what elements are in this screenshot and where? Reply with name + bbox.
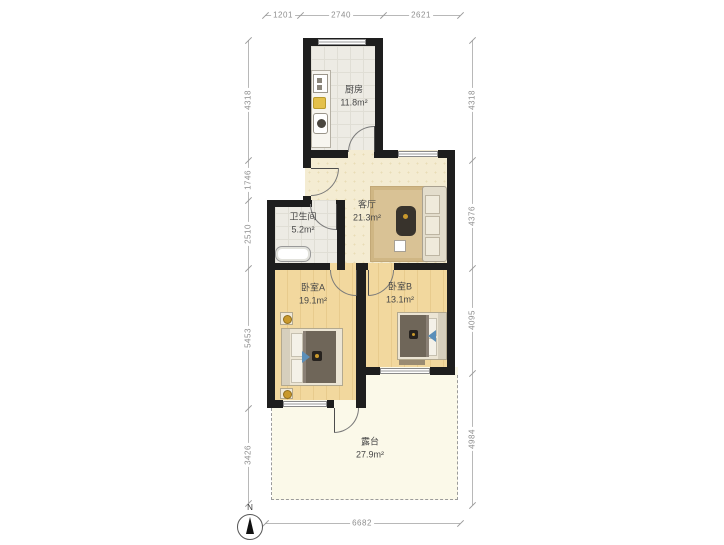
bed-tray bbox=[409, 330, 418, 339]
sofa bbox=[422, 186, 447, 262]
door-leaf bbox=[356, 270, 357, 296]
room-area: 5.2m² bbox=[289, 223, 316, 236]
nightstand bbox=[280, 388, 293, 399]
room-label-terrace: 露台 27.9m² bbox=[356, 435, 384, 460]
room-name: 卧室A bbox=[299, 281, 327, 294]
north-arrow-icon bbox=[246, 517, 254, 534]
wall-segment bbox=[267, 263, 330, 270]
dimension-label: 2740 bbox=[329, 11, 353, 20]
wall-segment bbox=[356, 270, 366, 408]
table-decor-icon bbox=[403, 214, 408, 219]
kitchen-sink bbox=[313, 113, 328, 134]
sofa-cushion bbox=[425, 195, 440, 214]
room-label-living: 客厅 21.3m² bbox=[353, 198, 381, 223]
sofa-cushion bbox=[425, 216, 440, 235]
door-leaf bbox=[374, 126, 375, 152]
blanket-fold-icon bbox=[428, 330, 436, 342]
bathtub bbox=[275, 246, 311, 262]
lamp-icon bbox=[283, 390, 292, 399]
wall-segment bbox=[303, 38, 311, 168]
tray-dot-icon bbox=[412, 333, 415, 336]
bed-headboard bbox=[438, 313, 446, 359]
door-leaf bbox=[336, 204, 337, 230]
dimension-label: 4984 bbox=[468, 427, 477, 451]
dimension-label: 4095 bbox=[468, 308, 477, 332]
terrace-boundary bbox=[271, 499, 458, 500]
wall-segment bbox=[374, 150, 398, 158]
room-name: 客厅 bbox=[353, 198, 381, 211]
dimension-label: 6682 bbox=[350, 519, 374, 528]
room-name: 卧室B bbox=[386, 280, 414, 293]
dimension-label: 3426 bbox=[244, 443, 253, 467]
compass: N bbox=[233, 503, 267, 545]
coffee-table bbox=[396, 206, 416, 236]
room-area: 27.9m² bbox=[356, 448, 384, 461]
bed-bench bbox=[399, 360, 425, 365]
room-area: 19.1m² bbox=[299, 294, 327, 307]
room-name: 厨房 bbox=[340, 83, 367, 96]
room-label-bedroom-a: 卧室A 19.1m² bbox=[299, 281, 327, 306]
dimension-label: 1201 bbox=[271, 11, 295, 20]
room-name: 露台 bbox=[356, 435, 384, 448]
kitchen-appliance bbox=[313, 97, 326, 109]
room-label-bedroom-b: 卧室B 13.1m² bbox=[386, 280, 414, 305]
bed-headboard bbox=[282, 329, 290, 385]
burner-icon bbox=[317, 85, 322, 90]
dimension-label: 2510 bbox=[244, 222, 253, 246]
sink-basin-icon bbox=[317, 119, 326, 128]
dimension-tick bbox=[457, 520, 464, 527]
burner-icon bbox=[317, 78, 322, 83]
sofa-cushion bbox=[425, 237, 440, 256]
window bbox=[398, 151, 438, 157]
tray-dot-icon bbox=[315, 354, 319, 358]
wall-segment bbox=[394, 263, 455, 270]
dimension-label: 1746 bbox=[244, 168, 253, 192]
dimension-label: 4318 bbox=[468, 88, 477, 112]
lamp-icon bbox=[283, 315, 292, 324]
room-label-kitchen: 厨房 11.8m² bbox=[340, 83, 367, 108]
wall-segment bbox=[267, 270, 275, 408]
wall-segment bbox=[267, 200, 275, 270]
bed-b bbox=[397, 312, 447, 360]
room-area: 13.1m² bbox=[386, 293, 414, 306]
wall-segment bbox=[337, 200, 345, 270]
dimension-label: 2621 bbox=[409, 11, 433, 20]
nightstand bbox=[280, 312, 293, 325]
window bbox=[283, 401, 327, 407]
dimension-label: 4376 bbox=[468, 204, 477, 228]
terrace-boundary bbox=[457, 375, 458, 500]
wall-segment bbox=[430, 367, 455, 375]
wall-segment bbox=[267, 400, 283, 408]
wall-segment bbox=[359, 400, 366, 408]
floor-plan: 厨房 11.8m² 客厅 21.3m² 卫生间 5.2m² 卧室A 19.1m²… bbox=[0, 0, 724, 545]
wall-segment bbox=[375, 38, 383, 150]
blanket-fold-icon bbox=[302, 351, 310, 363]
room-area: 11.8m² bbox=[340, 96, 367, 109]
stove-icon bbox=[313, 74, 328, 93]
wall-segment bbox=[356, 263, 368, 270]
side-table bbox=[394, 240, 406, 252]
dimension-tick bbox=[457, 12, 464, 19]
room-name: 卫生间 bbox=[289, 210, 316, 223]
window bbox=[318, 39, 366, 45]
dimension-tick bbox=[469, 502, 476, 509]
north-label: N bbox=[247, 503, 253, 512]
wall-segment bbox=[358, 367, 380, 375]
wall-segment bbox=[327, 400, 334, 408]
wall-segment bbox=[303, 150, 348, 158]
room-label-bathroom: 卫生间 5.2m² bbox=[289, 210, 316, 235]
terrace-boundary bbox=[271, 408, 272, 500]
bed-a bbox=[281, 328, 343, 386]
dimension-label: 4318 bbox=[244, 88, 253, 112]
room-area: 21.3m² bbox=[353, 211, 381, 224]
dimension-label: 5453 bbox=[244, 326, 253, 350]
window bbox=[380, 368, 430, 374]
bed-tray bbox=[312, 351, 322, 361]
